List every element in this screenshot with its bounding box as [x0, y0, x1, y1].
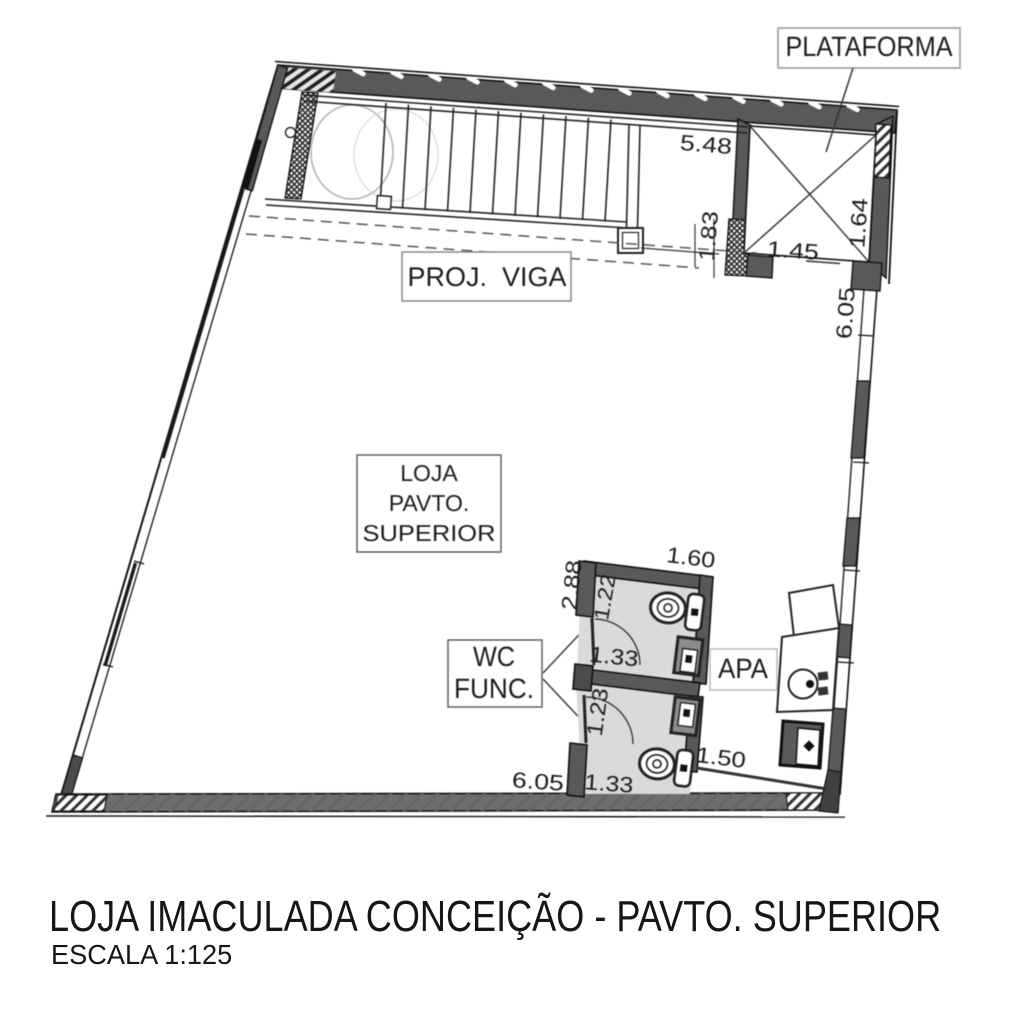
- svg-text:1.64: 1.64: [844, 197, 872, 249]
- svg-text:PLATAFORMA: PLATAFORMA: [786, 31, 953, 62]
- svg-text:1.33: 1.33: [584, 769, 635, 797]
- svg-text:PAVTO.: PAVTO.: [389, 490, 470, 516]
- svg-text:2.88: 2.88: [556, 559, 586, 611]
- svg-text:5.48: 5.48: [679, 130, 733, 159]
- svg-text:SUPERIOR: SUPERIOR: [363, 520, 496, 546]
- svg-text:1.33: 1.33: [588, 642, 639, 672]
- svg-text:PROJ. VIGA: PROJ. VIGA: [408, 262, 567, 292]
- svg-text:6.05: 6.05: [511, 767, 565, 796]
- svg-text:LOJA: LOJA: [400, 460, 458, 486]
- svg-text:1.45: 1.45: [766, 236, 820, 265]
- svg-text:APA: APA: [718, 653, 769, 684]
- svg-text:6.05: 6.05: [831, 286, 860, 340]
- svg-text:1.83: 1.83: [694, 210, 723, 262]
- svg-text:FUNC.: FUNC.: [454, 673, 534, 704]
- svg-text:1.60: 1.60: [665, 542, 717, 573]
- svg-text:WC: WC: [473, 641, 515, 672]
